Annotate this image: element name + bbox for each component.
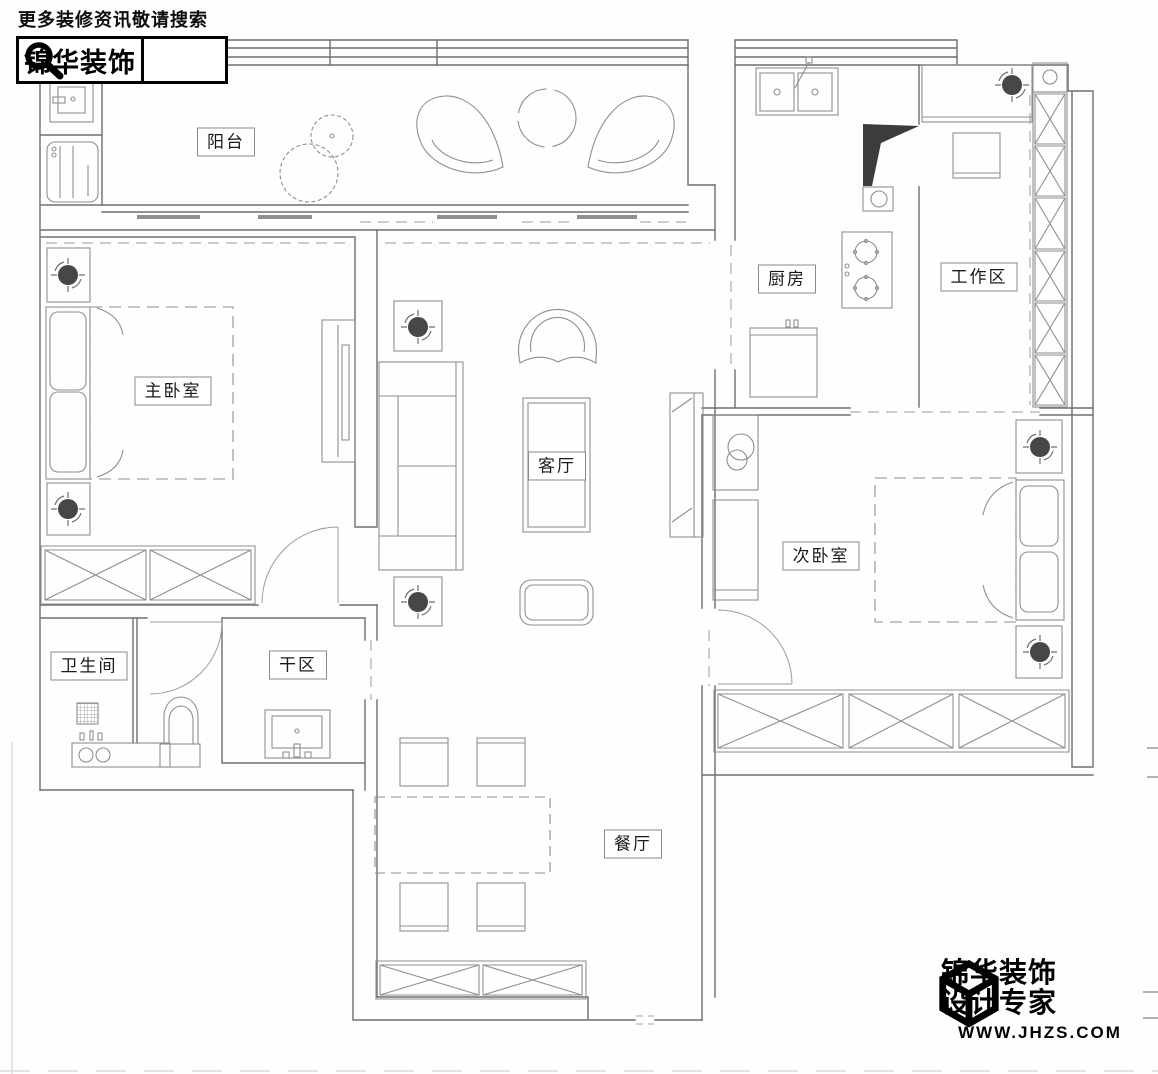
window-sills — [137, 215, 637, 219]
kitchen-corner-unit — [863, 124, 919, 186]
room-label-keting: 客厅 — [528, 452, 586, 481]
room-label-ganqu: 干区 — [269, 651, 327, 680]
downlight-icons — [51, 68, 1057, 669]
brand-logo-box: 锦华装饰 — [16, 36, 228, 84]
room-label-chufang: 厨房 — [758, 265, 816, 294]
room-label-zhuwoshi: 主卧室 — [135, 377, 212, 406]
room-label-gongzuoqu: 工作区 — [941, 263, 1018, 292]
room-label-ciwoshi: 次卧室 — [783, 542, 860, 571]
furniture — [41, 57, 1069, 999]
search-icon — [141, 39, 225, 81]
room-label-weishengjian: 卫生间 — [51, 652, 128, 681]
outer-and-inner-walls — [18, 40, 1093, 1020]
promo-text: 更多装修资讯敬请搜索 — [18, 6, 208, 32]
footer-logo: 锦华装饰 设计专家 WWW.JHZS.COM — [934, 958, 1146, 1043]
entry-dashes — [636, 1016, 654, 1024]
floorplan-page: 阳台主卧室厨房工作区客厅次卧室卫生间干区餐厅 更多装修资讯敬请搜索 锦华装饰 — [0, 0, 1158, 1074]
floorplan-drawing — [0, 0, 1158, 1074]
room-label-yangtai: 阳台 — [197, 128, 255, 157]
room-label-canting: 餐厅 — [604, 830, 662, 859]
